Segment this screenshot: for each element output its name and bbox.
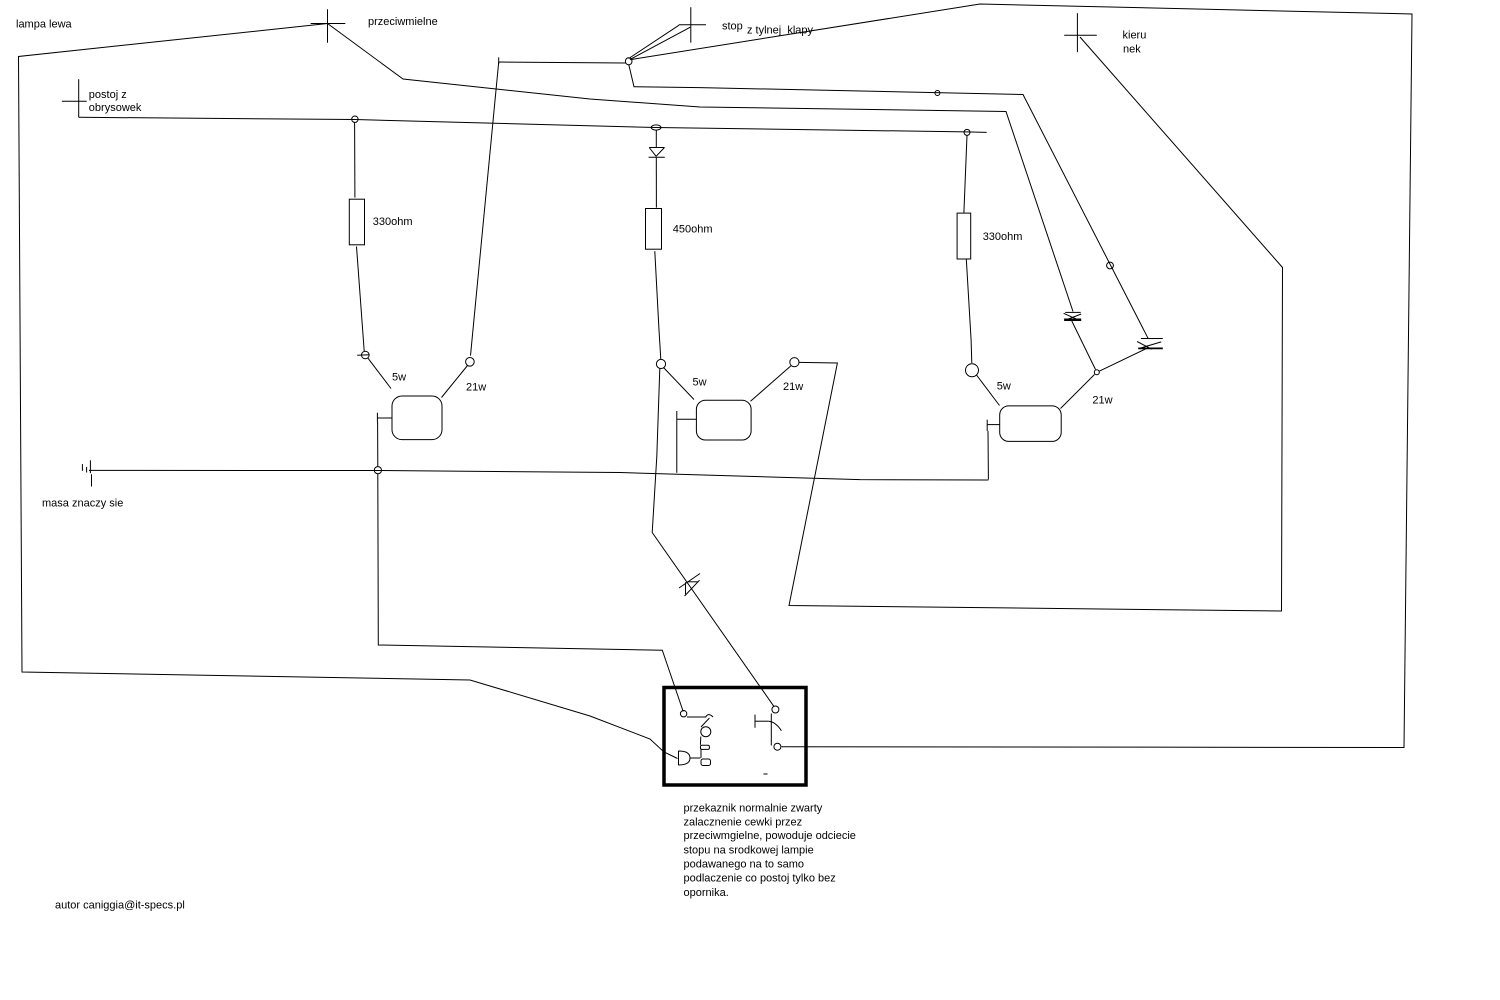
svg-text:przeciwmielne: przeciwmielne — [368, 16, 438, 28]
svg-text:opornika.: opornika. — [684, 887, 729, 899]
svg-text:330ohm: 330ohm — [373, 216, 413, 228]
svg-text:masa znaczy sie: masa znaczy sie — [42, 498, 123, 510]
svg-text:450ohm: 450ohm — [673, 223, 713, 235]
svg-text:stopu na srodkowej lampie: stopu na srodkowej lampie — [684, 845, 814, 857]
svg-text:nek: nek — [1123, 43, 1141, 55]
svg-text:21w: 21w — [1092, 394, 1112, 406]
svg-text:autor caniggia@it-specs.pl: autor caniggia@it-specs.pl — [55, 899, 185, 911]
svg-text:stop: stop — [722, 20, 743, 32]
svg-text:podawanego na to samo: podawanego na to samo — [684, 859, 804, 871]
svg-text:przeciwmgielne, powoduje odcie: przeciwmgielne, powoduje odciecie — [684, 830, 856, 842]
svg-text:21w: 21w — [783, 381, 803, 393]
svg-text:lampa lewa: lampa lewa — [16, 18, 73, 30]
svg-text:21w: 21w — [466, 381, 486, 393]
svg-text:postoj z: postoj z — [89, 89, 127, 101]
svg-text:330ohm: 330ohm — [983, 231, 1023, 243]
svg-text:5w: 5w — [997, 380, 1011, 392]
svg-text:przekaznik normalnie zwarty: przekaznik normalnie zwarty — [684, 803, 823, 815]
svg-text:kieru: kieru — [1123, 29, 1147, 41]
svg-text:5w: 5w — [693, 376, 707, 388]
svg-text:podlaczenie co postoj tylko be: podlaczenie co postoj tylko bez — [684, 872, 836, 884]
svg-text:zalacznenie cewki przez: zalacznenie cewki przez — [684, 816, 803, 828]
svg-text:5w: 5w — [392, 371, 406, 383]
svg-text:z tylnej klapy: z tylnej klapy — [747, 24, 814, 36]
svg-text:obrysowek: obrysowek — [89, 102, 142, 114]
